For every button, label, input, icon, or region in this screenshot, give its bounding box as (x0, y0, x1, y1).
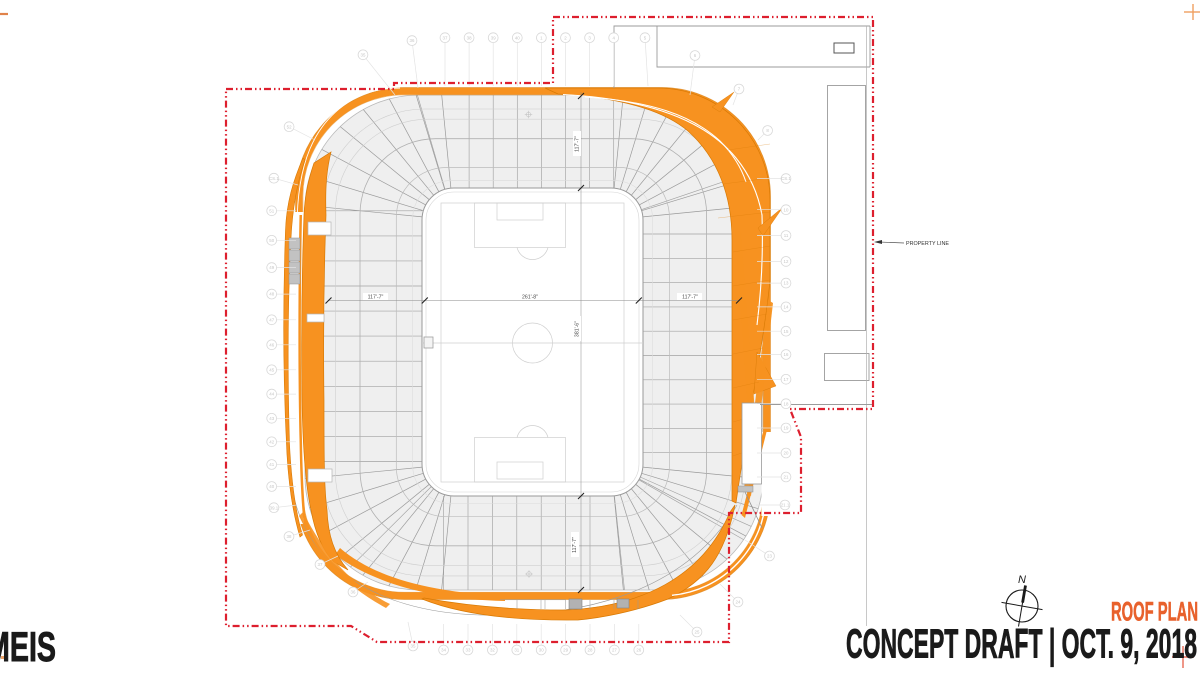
svg-text:35: 35 (361, 52, 366, 57)
svg-text:45: 45 (269, 367, 274, 372)
svg-text:44: 44 (269, 392, 274, 397)
svg-text:25: 25 (695, 630, 700, 635)
svg-text:17: 17 (784, 377, 789, 382)
svg-text:117'-7": 117'-7" (572, 537, 578, 553)
svg-text:19: 19 (784, 426, 789, 431)
svg-text:37: 37 (318, 562, 323, 567)
svg-text:36: 36 (410, 38, 415, 43)
svg-text:37: 37 (443, 35, 448, 40)
svg-text:50: 50 (269, 238, 274, 243)
svg-text:261'-8": 261'-8" (522, 295, 538, 301)
svg-text:39: 39 (491, 35, 496, 40)
svg-text:23: 23 (767, 554, 772, 559)
svg-text:32: 32 (490, 648, 495, 653)
svg-text:36: 36 (351, 590, 356, 595)
svg-text:117'-7": 117'-7" (682, 295, 698, 301)
svg-text:38: 38 (287, 534, 292, 539)
svg-text:40: 40 (269, 484, 274, 489)
svg-text:27: 27 (612, 648, 617, 653)
svg-text:52: 52 (287, 124, 292, 129)
svg-text:26: 26 (636, 648, 641, 653)
svg-text:29: 29 (563, 648, 568, 653)
svg-text:46: 46 (269, 342, 274, 347)
svg-text:16: 16 (784, 352, 789, 357)
svg-text:34: 34 (441, 648, 446, 653)
svg-text:47: 47 (269, 317, 274, 322)
svg-text:30: 30 (539, 648, 544, 653)
svg-text:41: 41 (269, 462, 274, 467)
svg-text:15: 15 (784, 329, 789, 334)
svg-text:33: 33 (466, 648, 471, 653)
svg-text:35: 35 (411, 644, 416, 649)
svg-text:N: N (1018, 574, 1026, 586)
svg-text:49: 49 (269, 265, 274, 270)
svg-text:117'-7": 117'-7" (575, 136, 581, 152)
svg-text:117'-7": 117'-7" (368, 295, 384, 301)
svg-text:43: 43 (269, 416, 274, 421)
svg-text:11: 11 (784, 233, 789, 238)
svg-text:21: 21 (784, 475, 789, 480)
svg-text:40: 40 (515, 35, 520, 40)
svg-text:13: 13 (784, 281, 789, 286)
svg-text:10: 10 (784, 207, 789, 212)
svg-text:14: 14 (784, 305, 789, 310)
svg-text:31: 31 (514, 648, 519, 653)
svg-text:CONCEPT DRAFT | OCT. 9, 2018: CONCEPT DRAFT | OCT. 9, 2018 (846, 621, 1197, 667)
svg-text:42: 42 (269, 439, 274, 444)
svg-text:12: 12 (784, 259, 789, 264)
svg-text:28: 28 (588, 648, 593, 653)
svg-text:CS.1: CS.1 (781, 176, 791, 181)
svg-text:51: 51 (269, 208, 274, 213)
svg-text:38: 38 (467, 35, 472, 40)
svg-text:MEIS: MEIS (0, 623, 56, 670)
svg-text:CS.1: CS.1 (269, 176, 279, 181)
svg-text:381'-6": 381'-6" (575, 321, 581, 337)
svg-text:39.1: 39.1 (270, 505, 279, 510)
svg-text:24: 24 (736, 600, 741, 605)
svg-text:18: 18 (784, 401, 789, 406)
svg-text:PROPERTY LINE: PROPERTY LINE (906, 241, 949, 247)
svg-text:ROOF PLAN: ROOF PLAN (1111, 597, 1198, 627)
svg-text:48: 48 (269, 292, 274, 297)
svg-text:20: 20 (784, 451, 789, 456)
svg-text:21.1: 21.1 (781, 503, 790, 508)
